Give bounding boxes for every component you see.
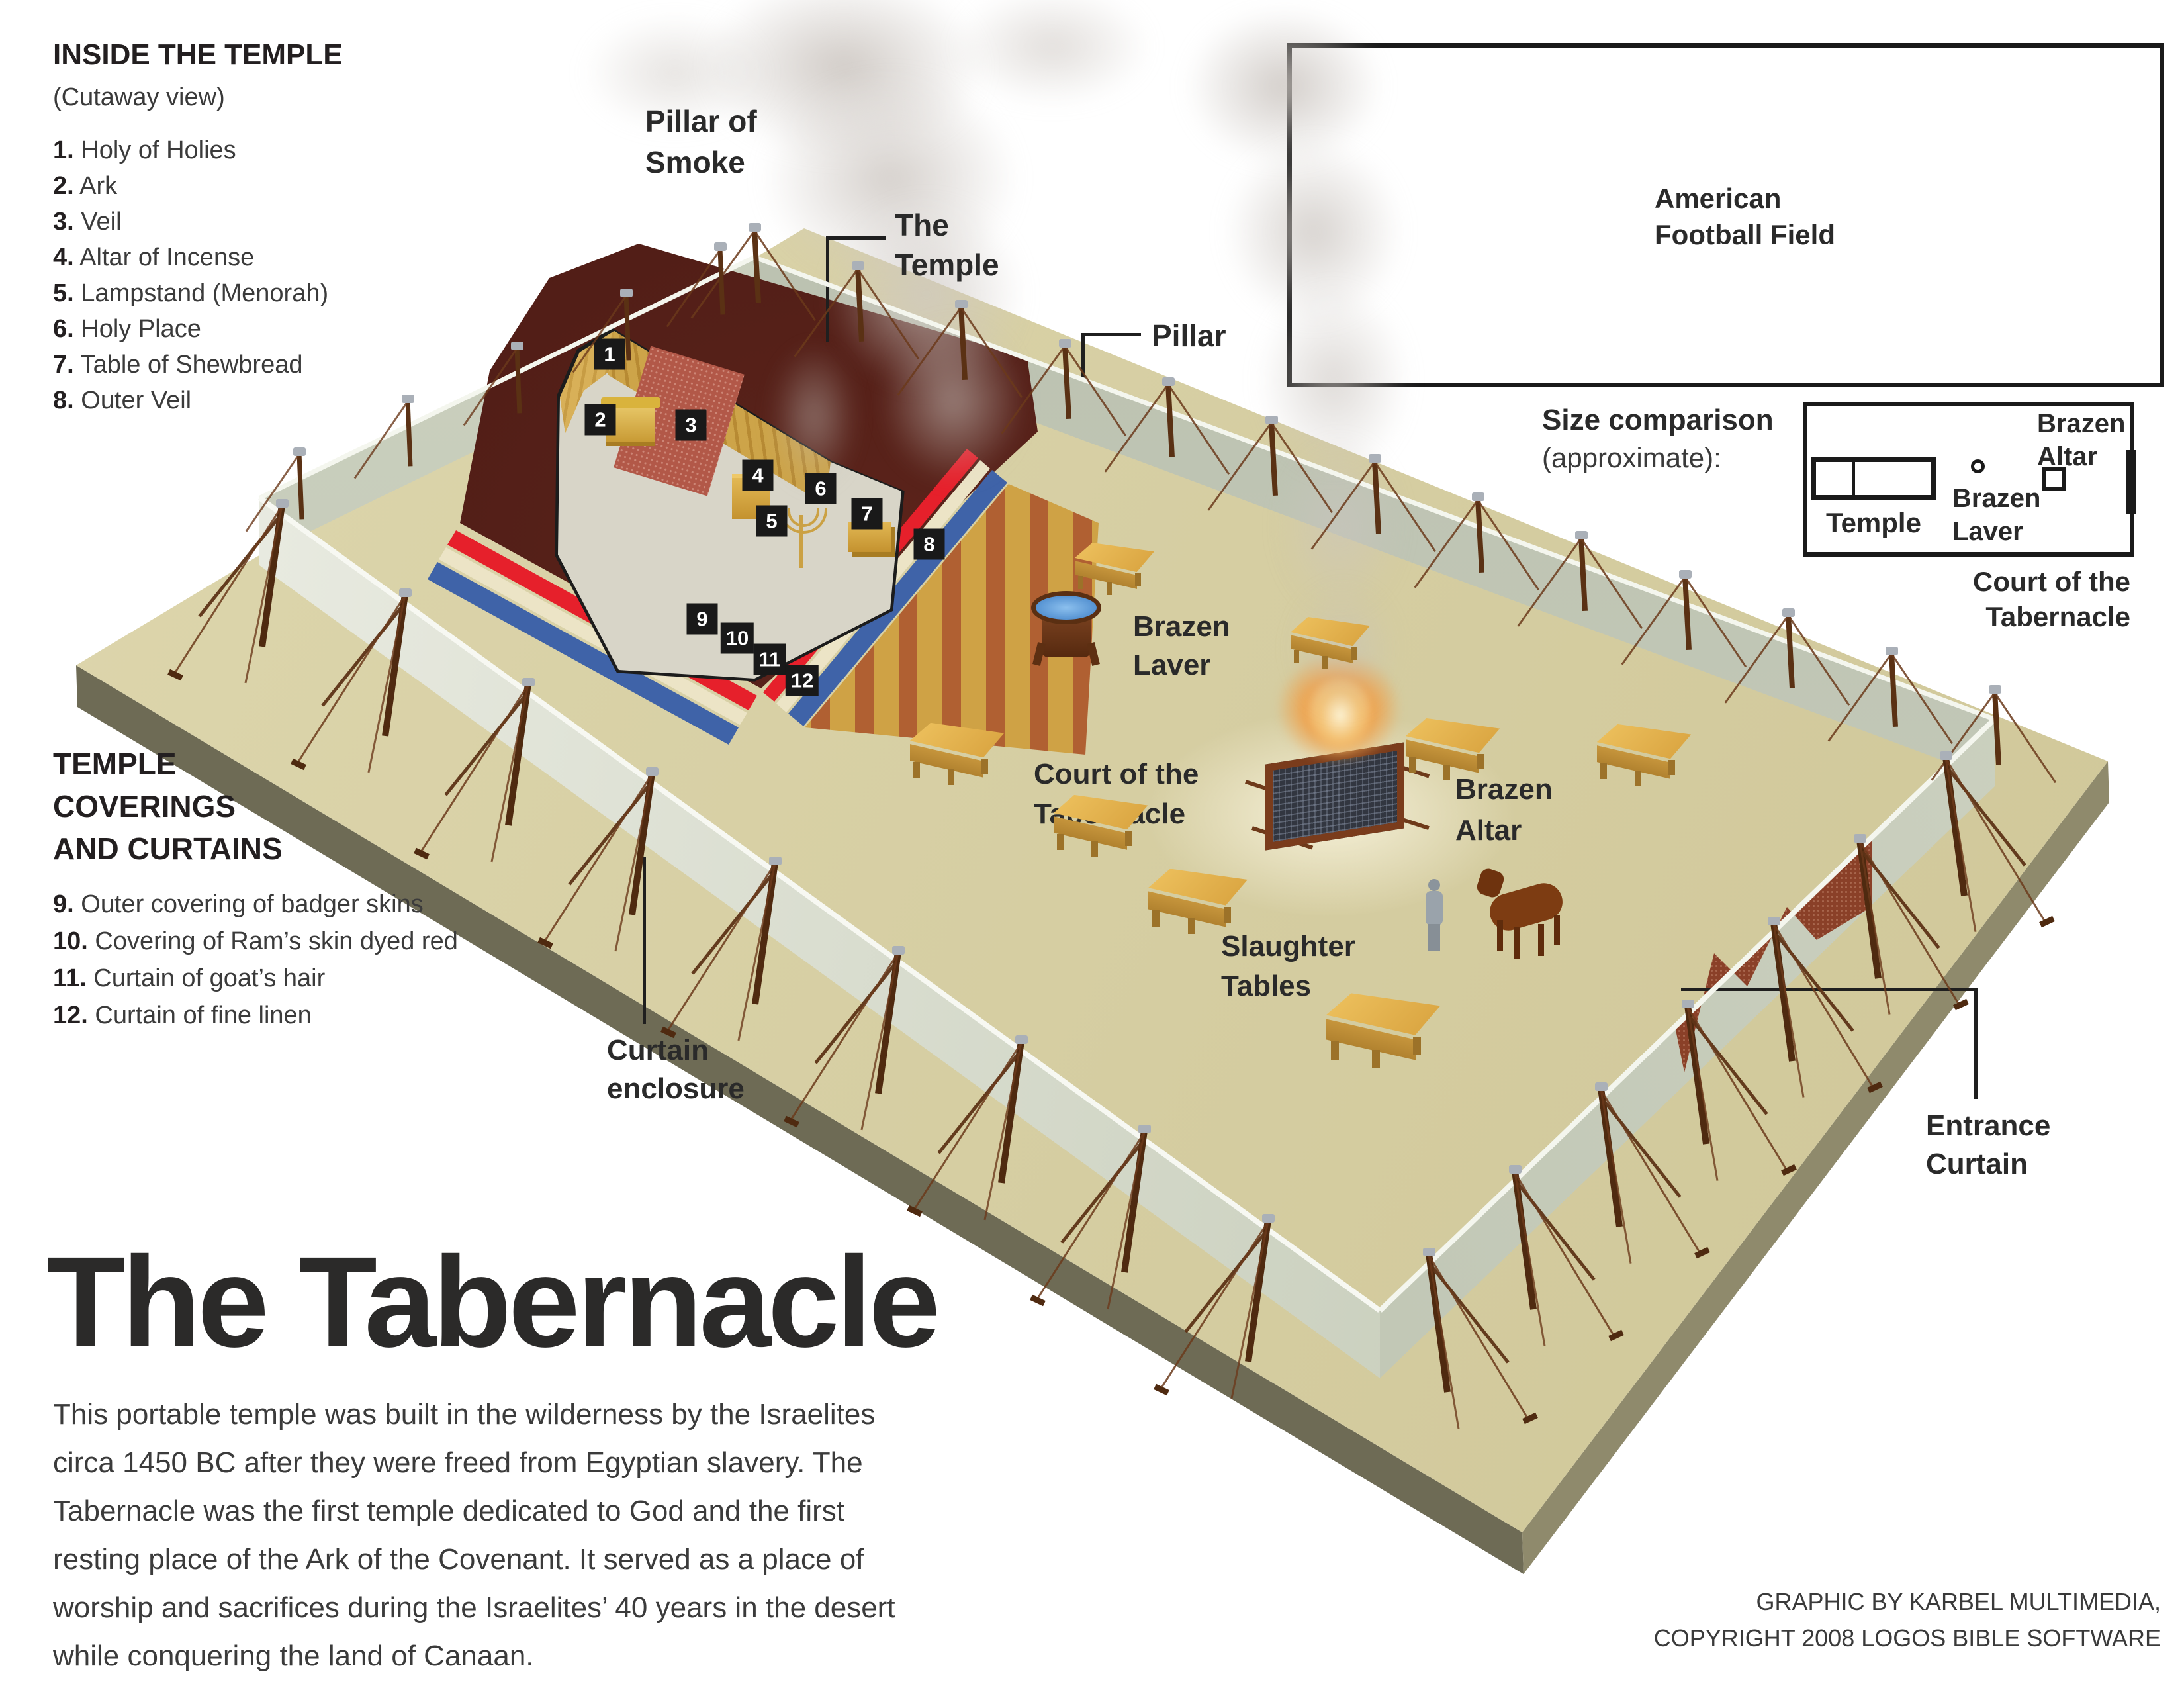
table-leg: [1372, 1050, 1380, 1068]
post-cap: [955, 300, 968, 308]
smoke-blob: [953, 0, 1152, 106]
list-item: 3. Veil: [53, 208, 328, 236]
post-cap: [1509, 1165, 1522, 1174]
paragraph-line: worship and sacrifices during the Israel…: [53, 1583, 895, 1632]
table-leg: [948, 769, 954, 784]
size-comparison-laver-label: Brazen Laver: [1952, 482, 2040, 548]
table-leg: [1331, 1041, 1339, 1059]
entrance-curtain-label: Entrance Curtain: [1926, 1107, 2050, 1184]
post-cap: [620, 289, 633, 297]
size-comparison-laver-circle: [1971, 459, 1985, 473]
badge-4: 4: [743, 460, 774, 491]
brazen-altar-label: Brazen Altar: [1455, 769, 1553, 851]
pillar-leader-line-h: [1081, 333, 1141, 336]
post-cap: [1595, 1082, 1608, 1091]
slaughter-table: [1406, 718, 1500, 778]
priest-figure: [1422, 879, 1448, 952]
sacrifice-cow: [1471, 866, 1583, 965]
list-item: 5. Lampstand (Menorah): [53, 279, 328, 308]
table-leg: [1188, 918, 1195, 935]
post-cap: [1472, 492, 1484, 501]
temple-leader-line-v: [826, 236, 829, 342]
slaughter-table: [1597, 724, 1692, 784]
curtain-enclosure-label: Curtain enclosure: [607, 1031, 745, 1108]
table-leg: [1413, 1037, 1421, 1055]
list-item: 10. Covering of Ram’s skin dyed red: [53, 927, 458, 956]
paragraph-line: This portable temple was built in the wi…: [53, 1390, 895, 1438]
entrance-curtain-leader-line-v: [1974, 988, 1978, 1099]
post-cap: [1989, 685, 2001, 694]
list-item: 1. Holy of Holies: [53, 136, 328, 165]
post-cap: [1262, 1214, 1275, 1223]
table-leg: [1443, 765, 1450, 780]
post-cap: [1782, 608, 1795, 617]
badge-7: 7: [852, 498, 883, 530]
list-item: 12. Curtain of fine linen: [53, 1002, 458, 1030]
list-item: 4. Altar of Incense: [53, 244, 328, 272]
inside-the-temple-heading: INSIDE THE TEMPLE: [53, 38, 343, 71]
size-comparison-temple-label: Temple: [1811, 507, 1936, 539]
credit-line: GRAPHIC BY KARBEL MULTIMEDIA,: [1654, 1583, 2161, 1620]
credit-text: GRAPHIC BY KARBEL MULTIMEDIA, COPYRIGHT …: [1654, 1583, 2161, 1656]
badge-1: 1: [594, 339, 625, 370]
pillar-of-smoke-label: Pillar of Smoke: [645, 101, 757, 183]
badge-9: 9: [687, 604, 718, 635]
table-leg: [981, 759, 988, 774]
post-cap: [399, 588, 412, 597]
post-cap: [1059, 339, 1071, 348]
slaughter-table: [1291, 617, 1370, 667]
table-leg: [1224, 907, 1231, 923]
list-item: 8. Outer Veil: [53, 387, 328, 415]
table-leg: [1294, 650, 1299, 663]
table-leg: [1135, 573, 1140, 586]
post-cap: [1423, 1248, 1435, 1256]
coverings-list: 9. Outer covering of badger skins 10. Co…: [53, 890, 458, 1030]
size-comparison-temple-rect: [1811, 457, 1936, 500]
slaughter-table: [1148, 869, 1248, 932]
credit-line: COPYRIGHT 2008 LOGOS BIBLE SOFTWARE: [1654, 1620, 2161, 1656]
page-title: The Tabernacle: [46, 1228, 937, 1376]
badge-11: 11: [754, 644, 786, 675]
table-leg: [1078, 576, 1083, 589]
curtain-enclosure-leader-line: [643, 857, 646, 1024]
size-comparison-altar-square: [2042, 467, 2066, 491]
badge-6: 6: [805, 473, 837, 504]
badge-8: 8: [914, 529, 945, 560]
table-leg: [1477, 754, 1484, 769]
slaughter-table: [1054, 795, 1148, 855]
post-cap: [646, 767, 659, 776]
post-cap: [749, 223, 761, 232]
list-item: 7. Table of Shewbread: [53, 351, 328, 379]
pillar-label: Pillar: [1152, 316, 1226, 355]
table-leg: [1091, 841, 1098, 857]
table-leg: [1635, 771, 1641, 786]
slaughter-table: [1075, 543, 1154, 593]
post-cap: [769, 857, 782, 865]
list-item: 2. Ark: [53, 172, 328, 201]
size-comparison-altar-label: Brazen Altar: [2037, 407, 2125, 473]
badge-12: 12: [786, 665, 819, 696]
post-cap: [1886, 647, 1898, 655]
post-cap: [1015, 1035, 1028, 1044]
inside-the-temple-list: 1. Holy of Holies 2. Ark 3. Veil 4. Alta…: [53, 136, 328, 415]
football-field-label: American Football Field: [1655, 180, 1835, 253]
size-comparison-heading: Size comparison: [1542, 404, 1774, 437]
post-cap: [1575, 531, 1588, 539]
post-cap: [511, 342, 523, 350]
altar-fire-core: [1307, 675, 1373, 755]
tent-stake: [1154, 1384, 1169, 1395]
post-cap: [892, 946, 905, 955]
post-cap: [1679, 570, 1692, 579]
the-temple-label: The Temple: [895, 205, 999, 285]
table-leg: [1152, 910, 1160, 927]
entrance-curtain-leader-line-h: [1681, 988, 1978, 991]
table-leg: [1409, 757, 1416, 773]
post-cap: [402, 395, 414, 403]
size-comparison-subheading: (approximate):: [1542, 442, 1721, 474]
slaughter-table: [1326, 993, 1441, 1065]
cutaway-view-subheading: (Cutaway view): [53, 83, 225, 112]
post-cap: [1768, 917, 1780, 925]
list-item: 6. Holy Place: [53, 315, 328, 344]
brazen-laver: [1031, 591, 1103, 668]
post-cap: [1265, 416, 1278, 424]
post-cap: [1138, 1125, 1151, 1133]
post-cap: [522, 678, 535, 686]
badge-3: 3: [676, 410, 707, 441]
temple-leader-line-h: [826, 236, 886, 240]
badge-10: 10: [721, 623, 754, 654]
paragraph-line: resting place of the Ark of the Covenant…: [53, 1535, 895, 1583]
list-item: 9. Outer covering of badger skins: [53, 890, 458, 919]
post-cap: [1162, 377, 1175, 386]
size-comparison-entrance-mark: [2126, 450, 2136, 514]
slaughter-table: [910, 723, 1005, 782]
size-comparison-court-label: Court of the Tabernacle: [1899, 564, 2130, 634]
intro-paragraph: This portable temple was built in the wi…: [53, 1390, 895, 1680]
badge-2: 2: [585, 404, 616, 436]
badge-5: 5: [756, 506, 788, 537]
size-comparison-temple-divider: [1852, 459, 1855, 498]
list-item: 11. Curtain of goat’s hair: [53, 964, 458, 993]
post-cap: [293, 447, 306, 456]
table-leg: [1125, 831, 1132, 846]
post-cap: [1854, 834, 1866, 843]
coverings-heading: TEMPLE COVERINGS AND CURTAINS: [53, 743, 283, 870]
post-cap: [714, 242, 727, 251]
table-leg: [1668, 760, 1675, 775]
table-leg: [913, 762, 920, 777]
table-leg: [1351, 647, 1356, 661]
paragraph-line: circa 1450 BC after they were freed from…: [53, 1438, 895, 1487]
table-leg: [1057, 834, 1064, 849]
brazen-laver-label: Brazen Laver: [1133, 608, 1230, 684]
table-leg: [1107, 582, 1112, 595]
post-cap: [1682, 1000, 1694, 1008]
post-cap: [1940, 751, 1952, 760]
tabernacle-infographic: American Football Field Size comparison …: [0, 0, 2184, 1688]
post-cap: [276, 499, 289, 508]
table-leg: [1322, 656, 1328, 669]
post-cap: [852, 261, 864, 270]
table-leg: [1600, 763, 1607, 778]
paragraph-line: while conquering the land of Canaan.: [53, 1632, 895, 1680]
post-cap: [1369, 454, 1381, 463]
paragraph-line: Tabernacle was the first temple dedicate…: [53, 1487, 895, 1535]
